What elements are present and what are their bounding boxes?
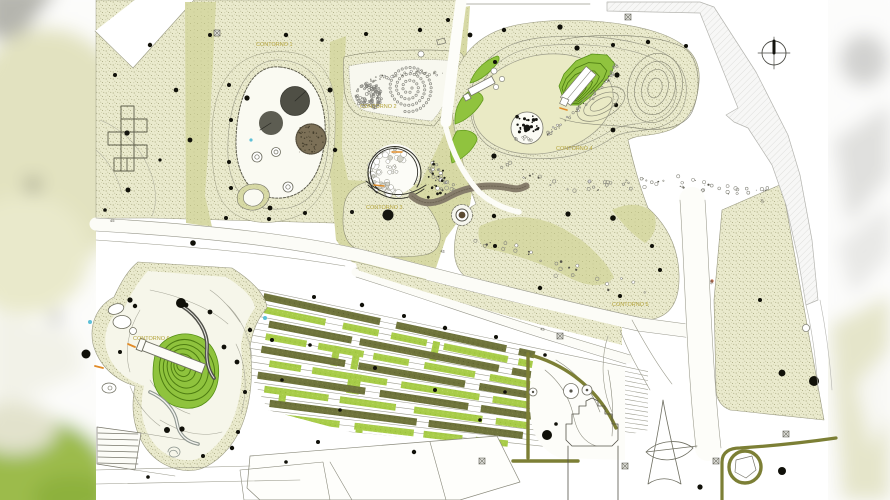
- svg-text:CONTORNO 3: CONTORNO 3: [366, 205, 403, 211]
- svg-text:CONTORNO 6: CONTORNO 6: [133, 336, 170, 342]
- svg-text:CONTORNO 5: CONTORNO 5: [612, 302, 649, 308]
- svg-text:CONTORNO 2: CONTORNO 2: [360, 104, 397, 110]
- svg-text:CONTORNO 1: CONTORNO 1: [256, 42, 293, 48]
- svg-text:CONTORNO 4: CONTORNO 4: [556, 146, 593, 152]
- svg-text:45: 45: [380, 0, 385, 1]
- svg-text:45: 45: [110, 218, 115, 223]
